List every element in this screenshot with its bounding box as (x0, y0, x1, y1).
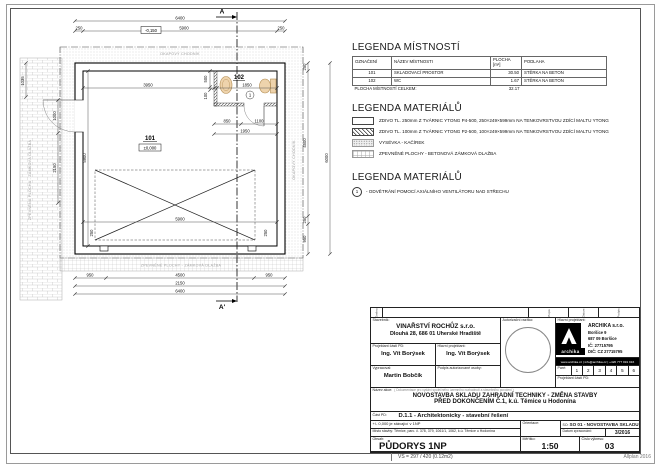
pare-row: Paré: 1 2 3 4 5 6 (556, 366, 639, 376)
bottom-band-label: ZPEVNĚNÉ PLOCHY - ZÁMKOVÁ DLAŽBA (141, 263, 222, 268)
archika-logo: archika (556, 323, 585, 355)
col-header-nazev: NÁZEV MÍSTNOSTI (392, 57, 491, 70)
so-label: SO: (563, 423, 569, 427)
room-floor: STĚRKA NA BETON (522, 69, 607, 77)
symbol-text: - ODVĚTRÁNÍ POMOCÍ AXIÁLNÍHO VENTILÁTORU… (366, 189, 509, 194)
legend-materials-title: LEGENDA MATERIÁLŮ (352, 103, 644, 114)
firm-column: Hlavní projektant: archika ARCHIKA s.r. (556, 318, 639, 388)
floor-plan-drawing: OKAPOVÝ CHODNÍK ZPEVNĚNÉ PLOCHY - ZÁMKOV… (0, 0, 350, 312)
material-item: ZPEVNĚNÉ PLOCHY - BETONOVÁ ZÁMKOVÁ DLAŽB… (352, 150, 644, 158)
dim-label: 3950 (143, 83, 153, 88)
misto-stavby-cell: Místo stavby: Těmice, parc. č. 378, 379,… (371, 429, 521, 437)
legends-panel: LEGENDA MÍSTNOSTÍ OZNAČENÍ NÁZEV MÍSTNOS… (352, 42, 644, 197)
left-door-opening (74, 100, 83, 132)
nazev-label: Název akce: ( Dokumentace pro vydání spo… (371, 388, 639, 392)
archika-logo-text: archika (556, 348, 585, 355)
dim-label: 250 (302, 63, 307, 71)
dim-label: 4500 (175, 273, 185, 278)
table-header-row: OZNAČENÍ NÁZEV MÍSTNOSTI PLOCHA [m²] POD… (353, 57, 607, 70)
pare-1: 1 (571, 366, 582, 375)
meritko-cell: Měřítko: 1:50 (521, 437, 580, 452)
so-row: SO: SO 01 - NOVOSTAVBA SKLADU (561, 421, 639, 427)
razitko-label: Autorizační razítko: (501, 318, 555, 322)
dim-label: 850 (224, 119, 232, 124)
pare-4: 4 (605, 366, 616, 375)
hlavni-projektant-label: Hlavní projektant: (436, 344, 500, 348)
material-item: VYSÉVKA - KAČÍREK (352, 139, 644, 147)
elevation-top: -0,150 (145, 28, 158, 33)
rev-popis-label: Popis (546, 309, 550, 317)
dim-label: 250 (76, 26, 84, 31)
rev-podpis-label: Podpis (617, 308, 621, 317)
firm-label: Hlavní projektant: (556, 318, 639, 322)
dim-label: 950 (87, 273, 95, 278)
firm-cell: Hlavní projektant: archika ARCHIKA s.r. (556, 318, 639, 358)
outer-wall (75, 63, 285, 254)
datum-label-cell: Datum zpracování: (561, 429, 606, 437)
room-floor: STĚRKA NA BETON (522, 77, 607, 85)
so-cell: SO: SO 01 - NOVOSTAVBA SKLADU (561, 421, 639, 429)
cislo-vykresu-value: 03 (580, 441, 639, 451)
section-label-bottom: A' (219, 304, 226, 311)
authors-row: Vypracoval: Martin Bobčík Podpis autoriz… (371, 366, 501, 388)
dim-label: 5900 (175, 217, 185, 222)
rev-datum-label: Datum (582, 308, 586, 317)
sheet-size-note: VŠ = 297 / 420 (0.12m2) (398, 454, 453, 460)
so-value: SO 01 - NOVOSTAVBA SKLADU (570, 422, 639, 427)
projektant-casti-2-label: Projektant části PD: (556, 376, 639, 380)
right-band-label: OKAPOVÝ CHODNÍK (292, 140, 296, 180)
podpis-cell: Podpis autorizované osoby: (436, 366, 501, 388)
existing-paved-area (20, 58, 62, 300)
rev-popis-cell: Popis (529, 308, 569, 318)
pare-5: 5 (616, 366, 627, 375)
rev-podpis-cell: Podpis (599, 308, 639, 318)
stavebnik-label: Stavebník: (371, 318, 500, 322)
room-name: SKLADOVACÍ PROSTOR (392, 69, 491, 77)
dim-label: 5900 (179, 26, 189, 31)
drawing-title: PŮDORYS 1NP (371, 441, 520, 452)
stavebnik-name: VINAŘSTVÍ ROCHŮZ s.r.o. (371, 323, 500, 330)
dim-label: 1100 (254, 119, 264, 124)
stavebnik-cell: Stavebník: VINAŘSTVÍ ROCHŮZ s.r.o. Dlouh… (371, 318, 501, 344)
drawing-sheet: OKAPOVÝ CHODNÍK ZPEVNĚNÉ PLOCHY - ZÁMKOV… (0, 0, 661, 468)
misto-value: Těmice, parc. č. 378, 379, 1061/1, 1062,… (394, 429, 495, 433)
misto-stavby: Místo stavby: Těmice, parc. č. 378, 379,… (371, 429, 520, 433)
pilaster-right (248, 246, 256, 251)
room-id: 102 (353, 77, 392, 85)
cast-pd-value: D.1.1 - Architektonicky - stavební řešen… (399, 413, 509, 419)
project-name-line2: PŘED DOKONČENÍM Č.1, k.ú. Těmice u Hodon… (371, 399, 639, 405)
legend-rooms-title: LEGENDA MÍSTNOSTÍ (352, 42, 644, 53)
nazev-note: ( Dokumentace pro vydání společného územ… (394, 388, 513, 392)
top-band-label: OKAPOVÝ CHODNÍK (160, 52, 200, 56)
rev-zmena-cell: Změna (371, 308, 383, 318)
projektant-casti-name: Ing. Vít Borýsek (371, 351, 435, 357)
orientace-cell: Orientace: (521, 421, 561, 437)
room-area: 30.50 (491, 69, 522, 77)
hlavni-projektant-name: Ing. Vít Borýsek (436, 351, 500, 357)
dim-label: 250 (263, 229, 268, 237)
projektant-casti-cell: Projektant části PD: Ing. Vít Borýsek (371, 344, 436, 366)
archika-logo-icon (556, 323, 581, 348)
material-item: ZDIVO TL. 250mm Z TVÁRNIC YTONG P4-500, … (352, 117, 644, 125)
swatch-paving-icon (352, 150, 374, 158)
dim-label: 2150 (175, 281, 185, 286)
dim-label: 950 (266, 273, 274, 278)
dim-label: 250 (302, 216, 307, 224)
elevation-note-cell: +/- 0,000 je stávající v 1NP (371, 421, 521, 429)
dim-label: 6400 (175, 289, 185, 294)
orientace-label: Orientace: (521, 421, 560, 425)
table-total-row: PLOCHA MÍSTNOSTÍ CELKEM: 32.17 (353, 85, 607, 92)
orientace-so-column: Orientace: SO: SO 01 - NOVOSTAVBA SKLADU… (521, 421, 639, 452)
titleblock-bottom: +/- 0,000 je stávající v 1NP Místo stavb… (371, 421, 639, 452)
elevation-note: +/- 0,000 je stávající v 1NP (371, 421, 520, 426)
rev-zmena-label: Změna (375, 308, 379, 317)
dim-label: 6400 (175, 16, 185, 21)
datum-value-cell: 3/2016 (606, 429, 639, 437)
dim-label: 1950 (240, 129, 250, 134)
podpis-label: Podpis autorizované osoby: (436, 366, 500, 370)
footer-divider-tick (391, 453, 392, 461)
material-item: ZDIVO TL. 100mm Z TVÁRNIC YTONG P2-500, … (352, 128, 644, 136)
section-arrowhead-top (232, 15, 237, 19)
vypracoval-cell: Vypracoval: Martin Bobčík (371, 366, 436, 388)
pilaster-left (100, 246, 108, 251)
firm-addr2: 687 09 Boršice (588, 336, 624, 342)
meritko-value: 1:50 (521, 441, 579, 451)
firm-contact-cell: www.archika.cz | info@archika.cz | +420 … (556, 358, 639, 366)
cast-pd-label: Část PD: (371, 414, 399, 418)
section-label-top: A (220, 9, 225, 16)
pare-3: 3 (593, 366, 604, 375)
col-header-oznaceni: OZNAČENÍ (353, 57, 392, 70)
col-header-podlaha: PODLAHA (522, 57, 607, 70)
project-name-cell: Název akce: ( Dokumentace pro vydání spo… (371, 388, 639, 412)
wc-partition-bottom-a (214, 103, 244, 106)
pare-label: Paré: (556, 366, 571, 375)
symbol-item: 1 - ODVĚTRÁNÍ POMOCÍ AXIÁLNÍHO VENTILÁTO… (352, 187, 644, 197)
wc-partition-bottom-b (264, 103, 277, 106)
material-text: VYSÉVKA - KAČÍREK (379, 140, 424, 145)
dim-label: 5900 (82, 153, 87, 163)
total-value: 32.17 (491, 85, 522, 92)
projektant-casti-2-cell: Projektant části PD: (556, 376, 639, 388)
cad-software-note: Allplan 2016 (623, 454, 651, 460)
vypracoval-label: Vypracoval: (371, 366, 435, 370)
room-name: WC (392, 77, 491, 85)
room-id: 101 (353, 69, 392, 77)
projektant-casti-label: Projektant části PD: (371, 344, 435, 348)
section-arrowhead-bottom (232, 299, 237, 303)
dim-label: 500 (203, 75, 208, 83)
hlavni-projektant-cell: Hlavní projektant: Ing. Vít Borýsek (436, 344, 501, 366)
dim-label: 1035 (20, 76, 25, 86)
title-block: Změna Popis Datum Podpis Stavebník: VINA… (370, 307, 640, 453)
revision-strip: Změna Popis Datum Podpis (371, 308, 639, 318)
firm-dic: DIČ: CZ 27715795 (588, 349, 624, 355)
rev-datum-cell: Datum (569, 308, 599, 318)
vent-symbol-icon: 1 (352, 187, 362, 197)
titleblock-main: Stavebník: VINAŘSTVÍ ROCHŮZ s.r.o. Dlouh… (371, 318, 639, 388)
left-band-label: ZPEVNĚNÁ PLOCHA - ZÁMKOVÁ DLAŽBA (27, 140, 32, 221)
room-102-number: 102 (234, 75, 245, 81)
material-text: ZDIVO TL. 250mm Z TVÁRNIC YTONG P4-500, … (379, 118, 609, 123)
swatch-ytong-250-icon (352, 117, 374, 125)
col-header-plocha: PLOCHA [m²] (491, 57, 522, 70)
dim-label: 100 (203, 92, 208, 100)
obsah-cell: Obsah: PŮDORYS 1NP (371, 437, 521, 452)
firm-name: ARCHIKA s.r.o. (588, 323, 624, 330)
toilet-bowl (260, 79, 271, 93)
designers-row: Projektant části PD: Ing. Vít Borýsek Hl… (371, 344, 501, 366)
so-datum-column: SO: SO 01 - NOVOSTAVBA SKLADU Datum zpra… (561, 421, 639, 437)
firm-contact: www.archika.cz | info@archika.cz | +420 … (556, 358, 639, 365)
room-101-elevation: ±0,000 (144, 145, 157, 150)
logo-a-glyph (559, 326, 579, 346)
rev-empty-cell (383, 308, 529, 318)
dim-label: 2150 (52, 163, 57, 173)
total-empty-cell (522, 85, 607, 92)
stamp-circle (505, 327, 551, 373)
parties-column: Stavebník: VINAŘSTVÍ ROCHŮZ s.r.o. Dlouh… (371, 318, 501, 388)
material-text: ZDIVO TL. 100mm Z TVÁRNIC YTONG P2-500, … (379, 129, 609, 134)
razitko-cell: Autorizační razítko: (501, 318, 556, 388)
swatch-gravel-icon (352, 139, 374, 147)
dim-label: 1850 (242, 83, 252, 88)
pare-2: 2 (582, 366, 593, 375)
dim-label: 1000 (52, 111, 57, 121)
dim-label: 4500 (302, 138, 307, 148)
toilet-tank (271, 79, 277, 93)
table-row: 101 SKLADOVACÍ PROSTOR 30.50 STĚRKA NA B… (353, 69, 607, 77)
pare-6: 6 (628, 366, 639, 375)
room-101-number: 101 (145, 136, 156, 142)
cast-pd-cell: Část PD: D.1.1 - Architektonicky - stave… (371, 412, 639, 421)
dim-label: 250 (278, 26, 286, 31)
stavebnik-address: Dlouhá 28, 686 01 Uherské Hradiště (371, 331, 500, 337)
dim-label: 250 (89, 229, 94, 237)
material-text: ZPEVNĚNÉ PLOCHY - BETONOVÁ ZÁMKOVÁ DLAŽB… (379, 151, 496, 156)
nazev-label-text: Název akce: (373, 388, 393, 392)
cislo-vykresu-cell: Číslo výkresu: 03 (580, 437, 639, 452)
dim-label: 950 (302, 235, 307, 243)
room-area: 1.67 (491, 77, 522, 85)
total-label: PLOCHA MÍSTNOSTÍ CELKEM: (353, 85, 491, 92)
datum-label: Datum zpracování: (561, 429, 605, 433)
vypracoval-name: Martin Bobčík (371, 373, 435, 379)
swatch-ytong-100-icon (352, 128, 374, 136)
legend-symbols-title: LEGENDA MATERIÁLŮ (352, 172, 644, 183)
content-column: +/- 0,000 je stávající v 1NP Místo stavb… (371, 421, 521, 452)
misto-label: Místo stavby: (373, 429, 394, 433)
table-row: 102 WC 1.67 STĚRKA NA BETON (353, 77, 607, 85)
dim-label: 6000 (324, 153, 329, 163)
room-legend-table: OZNAČENÍ NÁZEV MÍSTNOSTI PLOCHA [m²] POD… (352, 56, 607, 93)
